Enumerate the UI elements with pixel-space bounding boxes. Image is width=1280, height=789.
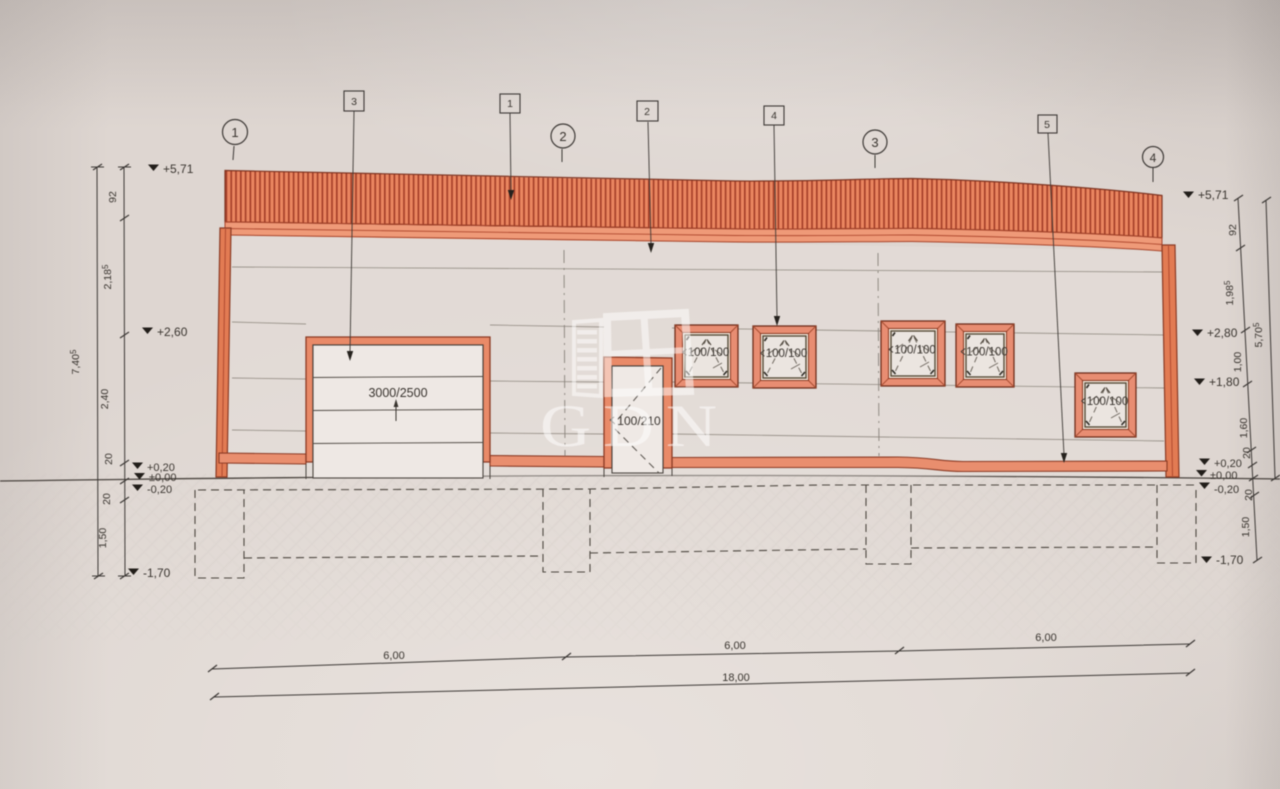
svg-text:100/100: 100/100 — [894, 344, 936, 356]
svg-text:6,00: 6,00 — [1035, 632, 1056, 644]
svg-text:-0,20: -0,20 — [147, 484, 172, 496]
svg-text:-1,70: -1,70 — [143, 566, 171, 580]
svg-text:18,00: 18,00 — [722, 672, 750, 684]
svg-text:20: 20 — [101, 493, 113, 505]
svg-text:92: 92 — [107, 191, 119, 203]
svg-text:2,185: 2,185 — [101, 264, 114, 289]
svg-text:100/100: 100/100 — [766, 348, 808, 360]
svg-text:1: 1 — [507, 98, 513, 110]
svg-text:3: 3 — [351, 96, 357, 108]
svg-text:1,985: 1,985 — [1223, 280, 1236, 305]
svg-text:7,405: 7,405 — [69, 349, 82, 374]
svg-text:4: 4 — [771, 110, 777, 122]
svg-text:-0,20: -0,20 — [1214, 484, 1239, 496]
svg-text:1,50: 1,50 — [1240, 517, 1252, 538]
svg-text:+0,20: +0,20 — [1214, 458, 1242, 470]
svg-text:-1,70: -1,70 — [1216, 553, 1244, 567]
svg-text:+5,71: +5,71 — [1198, 188, 1229, 202]
svg-text:1: 1 — [231, 125, 238, 140]
svg-text:2: 2 — [559, 129, 566, 144]
svg-text:100/100: 100/100 — [688, 347, 730, 359]
svg-text:+2,60: +2,60 — [157, 325, 188, 339]
svg-text:2,40: 2,40 — [99, 389, 111, 410]
svg-text:3000/2500: 3000/2500 — [368, 386, 427, 400]
svg-text:92: 92 — [1227, 224, 1239, 236]
svg-text:±0,00: ±0,00 — [149, 472, 176, 484]
svg-text:+2,80: +2,80 — [1207, 326, 1238, 340]
svg-text:1,50: 1,50 — [97, 528, 109, 549]
svg-text:3: 3 — [871, 135, 878, 150]
svg-text:100/100: 100/100 — [1087, 396, 1129, 408]
svg-text:5,705: 5,705 — [1252, 322, 1265, 347]
svg-text:20: 20 — [103, 453, 115, 465]
svg-text:2: 2 — [644, 106, 650, 118]
svg-text:6,00: 6,00 — [724, 640, 745, 652]
svg-text:5: 5 — [1044, 119, 1050, 131]
svg-text:100/100: 100/100 — [966, 347, 1008, 359]
svg-text:20: 20 — [1241, 447, 1253, 459]
svg-text:4: 4 — [1150, 151, 1157, 165]
svg-text:+5,71: +5,71 — [163, 162, 194, 176]
svg-text:±0,00: ±0,00 — [1210, 470, 1237, 482]
svg-text:GDN: GDN — [540, 394, 729, 460]
svg-text:20: 20 — [1243, 489, 1255, 501]
svg-text:+1,80: +1,80 — [1209, 375, 1240, 389]
svg-text:1,60: 1,60 — [1238, 418, 1250, 439]
svg-text:1,00: 1,00 — [1232, 352, 1244, 373]
svg-text:6,00: 6,00 — [383, 650, 404, 662]
